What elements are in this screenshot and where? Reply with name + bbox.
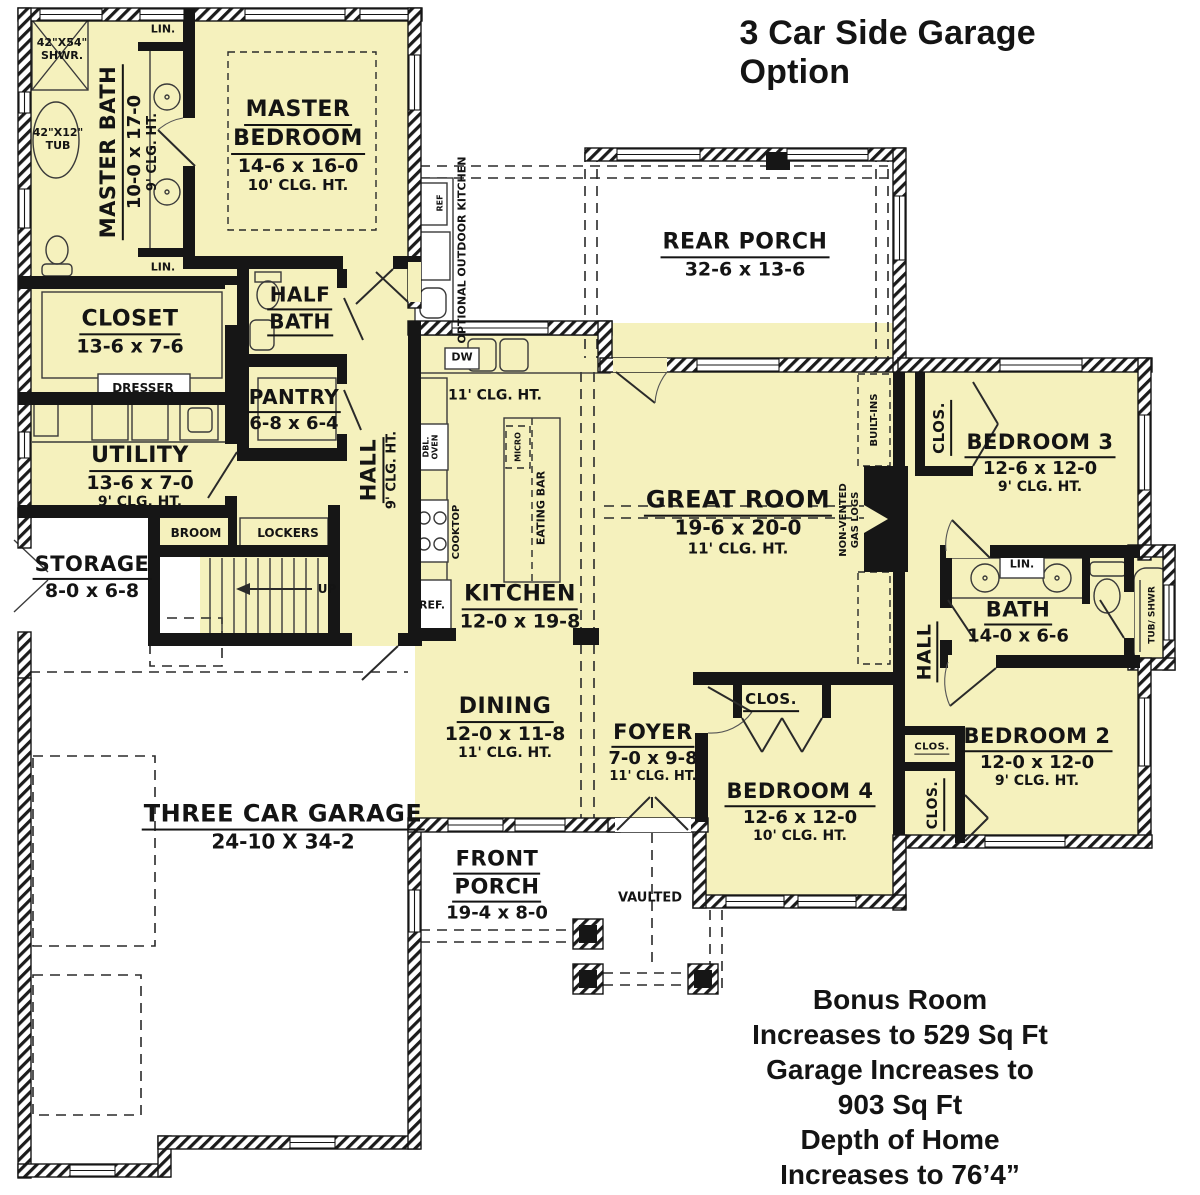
floor-plan-page: 3 Car Side Garage Option Bonus Room Incr… bbox=[0, 0, 1200, 1195]
linen-label-mid: LIN. bbox=[151, 262, 176, 275]
closet-label-bedroom3: CLOS. bbox=[930, 400, 952, 456]
outdoor-ref-label: REF bbox=[435, 194, 444, 211]
room-label-bath: BATH 14-0 x 6-6 bbox=[967, 598, 1069, 647]
closet-label-bedroom2: CLOS. bbox=[923, 779, 945, 832]
gas-logs-label: NON-VENTED GAS LOGS bbox=[838, 483, 862, 557]
room-label-bedroom4: BEDROOM 4 12-6 x 12-0 10' CLG. HT. bbox=[725, 779, 876, 845]
eating-bar-label: EATING BAR bbox=[536, 471, 549, 545]
kitchen-ceiling-label: 11' CLG. HT. bbox=[448, 388, 542, 405]
linen-label-top: LIN. bbox=[151, 24, 176, 37]
fireplace bbox=[864, 466, 908, 572]
microwave-label: MICRO bbox=[513, 432, 522, 462]
option-notes: Bonus Room Increases to 529 Sq Ft Garage… bbox=[750, 982, 1050, 1192]
note-line-2: Garage Increases to 903 Sq Ft bbox=[750, 1052, 1050, 1122]
room-label-master-bath: MASTER BATH 10-0 x 17-0 9' CLG. HT. bbox=[96, 64, 160, 240]
double-oven-label: DBL. OVEN bbox=[422, 435, 441, 460]
room-label-rear-porch: REAR PORCH 32-6 x 13-6 bbox=[661, 229, 830, 280]
room-label-utility: UTILITY 13-6 x 7-0 9' CLG. HT. bbox=[86, 443, 193, 511]
room-label-bedroom3: BEDROOM 3 12-6 x 12-0 9' CLG. HT. bbox=[965, 430, 1116, 496]
room-label-storage: STORAGE 8-0 x 6-8 bbox=[33, 552, 152, 602]
closet-label-bedroom4: CLOS. bbox=[743, 690, 799, 712]
porch-columns bbox=[573, 919, 718, 994]
vaulted-label: VAULTED bbox=[618, 890, 682, 905]
lockers-label: LOCKERS bbox=[257, 526, 319, 540]
room-label-bedroom2: BEDROOM 2 12-0 x 12-0 9' CLG. HT. bbox=[962, 724, 1113, 790]
page-title: 3 Car Side Garage Option bbox=[740, 14, 1047, 92]
room-label-kitchen: KITCHEN 12-0 x 19-8 bbox=[460, 581, 581, 632]
tub-shower-label: TUB/ SHWR bbox=[1148, 586, 1159, 644]
room-label-half-bath: HALF BATH bbox=[267, 283, 333, 336]
room-label-foyer: FOYER 7-0 x 9-8 11' CLG. HT. bbox=[608, 720, 697, 784]
closet-label-small: CLOS. bbox=[914, 742, 949, 755]
room-label-hall-left: HALL 9' CLG. HT. bbox=[356, 431, 399, 509]
dresser-label: DRESSER bbox=[112, 381, 174, 395]
shower-label: 42"X54" SHWR. bbox=[37, 37, 88, 63]
room-label-pantry: PANTRY 6-8 x 6-4 bbox=[247, 386, 341, 434]
room-label-great-room: GREAT ROOM 19-6 x 20-0 11' CLG. HT. bbox=[644, 486, 832, 559]
note-line-1: Bonus Room Increases to 529 Sq Ft bbox=[750, 982, 1050, 1052]
room-label-master-bedroom: MASTER BEDROOM 14-6 x 16-0 10' CLG. HT. bbox=[231, 97, 365, 195]
room-label-hall-right: HALL bbox=[913, 622, 938, 683]
optional-outdoor-kitchen-label: OPTIONAL OUTDOOR KITCHEN bbox=[457, 157, 470, 344]
room-label-closet: CLOSET 13-6 x 7-6 bbox=[76, 306, 183, 357]
dishwasher-label: DW bbox=[451, 352, 472, 365]
up-label: UP bbox=[318, 582, 337, 596]
room-label-dining: DINING 12-0 x 11-8 11' CLG. HT. bbox=[445, 694, 566, 762]
refrigerator-label: REF. bbox=[419, 600, 445, 613]
cooktop-label: COOKTOP bbox=[451, 505, 463, 560]
note-line-3: Depth of Home Increases to 76’4” bbox=[750, 1122, 1050, 1192]
tub-label: 42"X12" TUB bbox=[33, 127, 84, 153]
linen-label-bath: LIN. bbox=[1010, 559, 1035, 572]
room-label-garage: THREE CAR GARAGE 24-10 X 34-2 bbox=[142, 800, 425, 855]
built-ins-label: BUILT-INS bbox=[869, 394, 881, 447]
broom-label: BROOM bbox=[171, 526, 222, 540]
room-label-front-porch: FRONT PORCH 19-4 x 8-0 bbox=[446, 847, 548, 924]
